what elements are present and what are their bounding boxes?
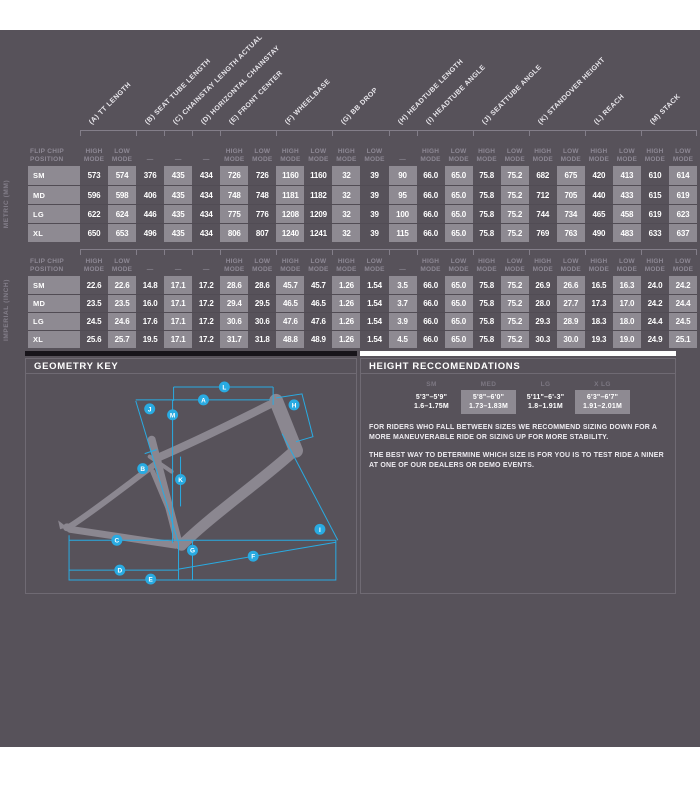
low-mode-header: LOW MODE bbox=[613, 249, 641, 276]
height-range-block: 6'3"–6'7"1.91–2.01M bbox=[575, 390, 630, 414]
marker-D: D bbox=[114, 565, 125, 576]
marker-G: G bbox=[187, 545, 198, 556]
table-cell: 435 bbox=[164, 166, 192, 185]
height-reco-top-bar bbox=[360, 351, 676, 356]
metric-unit-label: METRIC (MM) bbox=[1, 175, 13, 233]
height-recommendations-panel: HEIGHT RECCOMENDATIONS SM5'3"–5'9"1.6–1.… bbox=[360, 358, 676, 594]
table-cell: 66.0 bbox=[417, 223, 445, 242]
table-cell: 769 bbox=[529, 223, 557, 242]
table-cell: 75.8 bbox=[473, 276, 501, 294]
table-cell: 744 bbox=[529, 204, 557, 223]
table-cell: 95 bbox=[389, 185, 417, 204]
table-cell: 32 bbox=[332, 204, 360, 223]
table-cell: 66.0 bbox=[417, 294, 445, 312]
high-mode-header: HIGH MODE bbox=[473, 130, 501, 166]
table-cell: 30.0 bbox=[557, 330, 585, 348]
table-cell: 75.8 bbox=[473, 223, 501, 242]
table-cell: 763 bbox=[557, 223, 585, 242]
table-cell: 434 bbox=[192, 223, 220, 242]
table-cell: 32 bbox=[332, 185, 360, 204]
table-cell: 496 bbox=[136, 223, 164, 242]
table-cell: 434 bbox=[192, 185, 220, 204]
table-cell: 17.1 bbox=[164, 294, 192, 312]
low-mode-header: LOW MODE bbox=[501, 249, 529, 276]
table-cell: 435 bbox=[164, 185, 192, 204]
table-cell: 26.9 bbox=[529, 276, 557, 294]
height-range-meters: 1.6–1.75M bbox=[404, 402, 459, 411]
single-mode-header: — bbox=[164, 130, 192, 166]
height-column-label: LG bbox=[518, 379, 573, 390]
marker-E: E bbox=[145, 574, 156, 585]
single-mode-header: — bbox=[389, 130, 417, 166]
table-cell: 65.0 bbox=[445, 166, 473, 185]
height-range-meters: 1.91–2.01M bbox=[575, 402, 630, 411]
table-cell: 75.2 bbox=[501, 312, 529, 330]
table-cell: 75.2 bbox=[501, 276, 529, 294]
table-cell: 19.5 bbox=[136, 330, 164, 348]
bike-geometry-diagram: A B C D E F G H I J K L M bbox=[26, 374, 356, 593]
height-range-feet: 5'3"–5'9" bbox=[404, 393, 459, 402]
table-cell: 17.1 bbox=[164, 330, 192, 348]
table-cell: 624 bbox=[108, 204, 136, 223]
table-cell: 24.6 bbox=[108, 312, 136, 330]
svg-text:I: I bbox=[319, 527, 321, 534]
table-cell: 31.7 bbox=[220, 330, 248, 348]
height-range-block: 5'3"–5'9"1.6–1.75M bbox=[404, 390, 459, 414]
height-column-sm: SM5'3"–5'9"1.6–1.75M bbox=[404, 379, 459, 414]
measurement-lines bbox=[69, 387, 338, 580]
table-cell: 24.5 bbox=[669, 312, 697, 330]
table-cell: 420 bbox=[585, 166, 613, 185]
table-cell: 622 bbox=[80, 204, 108, 223]
high-mode-header: HIGH MODE bbox=[417, 130, 445, 166]
table-cell: 17.0 bbox=[613, 294, 641, 312]
table-cell: 28.6 bbox=[220, 276, 248, 294]
column-header-label: (F) WHEELBASE bbox=[284, 78, 332, 126]
low-mode-header: LOW MODE bbox=[557, 130, 585, 166]
table-cell: 726 bbox=[220, 166, 248, 185]
size-label: LG bbox=[28, 312, 80, 330]
table-cell: 17.2 bbox=[192, 312, 220, 330]
table-cell: 31.8 bbox=[248, 330, 276, 348]
marker-B: B bbox=[137, 463, 148, 474]
table-cell: 23.5 bbox=[108, 294, 136, 312]
table-cell: 440 bbox=[585, 185, 613, 204]
table-cell: 1181 bbox=[276, 185, 304, 204]
table-cell: 1.54 bbox=[360, 312, 388, 330]
table-cell: 75.8 bbox=[473, 185, 501, 204]
column-header-label: (E) FRONT CENTER bbox=[228, 70, 284, 126]
table-cell: 28.0 bbox=[529, 294, 557, 312]
size-label: XL bbox=[28, 223, 80, 242]
table-cell: 66.0 bbox=[417, 330, 445, 348]
table-cell: 24.9 bbox=[641, 330, 669, 348]
svg-text:F: F bbox=[251, 554, 255, 561]
table-cell: 75.8 bbox=[473, 330, 501, 348]
table-cell: 19.0 bbox=[613, 330, 641, 348]
table-cell: 434 bbox=[192, 166, 220, 185]
height-column-label: X LG bbox=[575, 379, 630, 390]
low-mode-header: LOW MODE bbox=[445, 249, 473, 276]
marker-A: A bbox=[198, 394, 209, 405]
metric-geometry-table: FLIP CHIP POSITIONHIGH MODELOW MODE———HI… bbox=[28, 130, 697, 242]
table-cell: 615 bbox=[641, 185, 669, 204]
table-cell: 1.54 bbox=[360, 294, 388, 312]
table-cell: 32 bbox=[332, 166, 360, 185]
table-cell: 45.7 bbox=[276, 276, 304, 294]
table-cell: 598 bbox=[108, 185, 136, 204]
table-cell: 1241 bbox=[304, 223, 332, 242]
table-cell: 48.8 bbox=[276, 330, 304, 348]
table-cell: 66.0 bbox=[417, 204, 445, 223]
height-column-x-lg: X LG6'3"–6'7"1.91–2.01M bbox=[575, 379, 630, 414]
high-mode-header: HIGH MODE bbox=[220, 130, 248, 166]
svg-text:M: M bbox=[170, 412, 175, 419]
high-mode-header: HIGH MODE bbox=[80, 249, 108, 276]
low-mode-header: LOW MODE bbox=[304, 249, 332, 276]
low-mode-header: LOW MODE bbox=[669, 249, 697, 276]
table-cell: 25.6 bbox=[80, 330, 108, 348]
table-cell: 45.7 bbox=[304, 276, 332, 294]
table-cell: 573 bbox=[80, 166, 108, 185]
table-cell: 1160 bbox=[304, 166, 332, 185]
high-mode-header: HIGH MODE bbox=[332, 130, 360, 166]
svg-text:K: K bbox=[178, 477, 183, 484]
height-recommendations-title: HEIGHT RECCOMENDATIONS bbox=[361, 359, 675, 374]
high-mode-header: HIGH MODE bbox=[276, 249, 304, 276]
table-cell: 75.2 bbox=[501, 294, 529, 312]
table-cell: 47.6 bbox=[276, 312, 304, 330]
table-cell: 75.2 bbox=[501, 166, 529, 185]
low-mode-header: LOW MODE bbox=[360, 130, 388, 166]
table-cell: 39 bbox=[360, 223, 388, 242]
high-mode-header: HIGH MODE bbox=[529, 130, 557, 166]
marker-L: L bbox=[219, 381, 230, 392]
table-cell: 17.1 bbox=[164, 276, 192, 294]
table-cell: 16.3 bbox=[613, 276, 641, 294]
table-cell: 1240 bbox=[276, 223, 304, 242]
table-cell: 75.2 bbox=[501, 185, 529, 204]
table-cell: 100 bbox=[389, 204, 417, 223]
table-cell: 807 bbox=[248, 223, 276, 242]
table-cell: 90 bbox=[389, 166, 417, 185]
high-mode-header: HIGH MODE bbox=[585, 249, 613, 276]
bike-frame bbox=[70, 401, 296, 545]
down-tube bbox=[182, 454, 292, 546]
table-cell: 483 bbox=[613, 223, 641, 242]
table-cell: 47.6 bbox=[304, 312, 332, 330]
column-header-label: (K) STANDOVER HEIGHT bbox=[537, 56, 607, 126]
table-cell: 27.7 bbox=[557, 294, 585, 312]
table-cell: 30.6 bbox=[220, 312, 248, 330]
high-mode-header: HIGH MODE bbox=[473, 249, 501, 276]
marker-I: I bbox=[314, 524, 325, 535]
svg-text:L: L bbox=[222, 384, 226, 391]
table-cell: 65.0 bbox=[445, 294, 473, 312]
table-cell: 1.26 bbox=[332, 294, 360, 312]
table-cell: 23.5 bbox=[80, 294, 108, 312]
column-header-label: (L) REACH bbox=[593, 93, 626, 126]
geometry-key-panel: GEOMETRY KEY bbox=[25, 358, 357, 594]
high-mode-header: HIGH MODE bbox=[332, 249, 360, 276]
low-mode-header: LOW MODE bbox=[501, 130, 529, 166]
low-mode-header: LOW MODE bbox=[360, 249, 388, 276]
table-cell: 24.4 bbox=[669, 294, 697, 312]
low-mode-header: LOW MODE bbox=[304, 130, 332, 166]
height-range-block: 5'8"–6'0"1.73–1.83M bbox=[461, 390, 516, 414]
low-mode-header: LOW MODE bbox=[248, 249, 276, 276]
svg-text:B: B bbox=[140, 466, 145, 473]
size-label: SM bbox=[28, 166, 80, 185]
bottom-bracket bbox=[174, 537, 186, 549]
table-cell: 14.8 bbox=[136, 276, 164, 294]
height-range-feet: 5'11"–6'-3" bbox=[518, 393, 573, 402]
table-cell: 637 bbox=[669, 223, 697, 242]
table-cell: 650 bbox=[80, 223, 108, 242]
table-cell: 610 bbox=[641, 166, 669, 185]
table-cell: 574 bbox=[108, 166, 136, 185]
table-cell: 39 bbox=[360, 204, 388, 223]
table-cell: 619 bbox=[641, 204, 669, 223]
table-cell: 22.6 bbox=[80, 276, 108, 294]
table-cell: 705 bbox=[557, 185, 585, 204]
height-range-block: 5'11"–6'-3"1.8–1.91M bbox=[518, 390, 573, 414]
high-mode-header: HIGH MODE bbox=[80, 130, 108, 166]
table-cell: 24.0 bbox=[641, 276, 669, 294]
table-cell: 16.0 bbox=[136, 294, 164, 312]
column-header-label: (I) HEADTUBE ANGLE bbox=[425, 64, 487, 126]
table-cell: 16.5 bbox=[585, 276, 613, 294]
table-cell: 65.0 bbox=[445, 185, 473, 204]
table-cell: 596 bbox=[80, 185, 108, 204]
low-mode-header: LOW MODE bbox=[108, 249, 136, 276]
table-cell: 29.5 bbox=[248, 294, 276, 312]
table-cell: 65.0 bbox=[445, 204, 473, 223]
table-cell: 24.4 bbox=[641, 312, 669, 330]
table-cell: 17.3 bbox=[585, 294, 613, 312]
table-cell: 1.26 bbox=[332, 276, 360, 294]
table-cell: 75.8 bbox=[473, 204, 501, 223]
table-cell: 25.7 bbox=[108, 330, 136, 348]
table-cell: 25.1 bbox=[669, 330, 697, 348]
table-cell: 776 bbox=[248, 204, 276, 223]
base-box-lines bbox=[69, 535, 336, 580]
height-column-label: MED bbox=[461, 379, 516, 390]
head-angle-line bbox=[282, 434, 338, 541]
table-cell: 19.3 bbox=[585, 330, 613, 348]
size-label: LG bbox=[28, 204, 80, 223]
table-cell: 446 bbox=[136, 204, 164, 223]
marker-K: K bbox=[175, 474, 186, 485]
table-cell: 633 bbox=[641, 223, 669, 242]
table-cell: 65.0 bbox=[445, 330, 473, 348]
table-cell: 1.26 bbox=[332, 330, 360, 348]
table-cell: 29.3 bbox=[529, 312, 557, 330]
table-cell: 1.54 bbox=[360, 276, 388, 294]
column-header-label: (A) TT LENGTH bbox=[88, 81, 133, 126]
table-cell: 806 bbox=[220, 223, 248, 242]
single-mode-header: — bbox=[136, 130, 164, 166]
table-cell: 29.4 bbox=[220, 294, 248, 312]
table-cell: 1160 bbox=[276, 166, 304, 185]
table-cell: 435 bbox=[164, 223, 192, 242]
svg-text:C: C bbox=[115, 538, 120, 545]
table-cell: 1.26 bbox=[332, 312, 360, 330]
size-label: MD bbox=[28, 294, 80, 312]
geometry-key-top-bar bbox=[25, 351, 357, 356]
geometry-chart-page: (A) TT LENGTH(B) SEAT TUBE LENGTH(C) CHA… bbox=[0, 0, 700, 800]
table-cell: 24.2 bbox=[669, 276, 697, 294]
flip-chip-position-header: FLIP CHIP POSITION bbox=[28, 249, 80, 276]
table-cell: 18.3 bbox=[585, 312, 613, 330]
table-cell: 48.9 bbox=[304, 330, 332, 348]
table-cell: 28.9 bbox=[557, 312, 585, 330]
svg-text:E: E bbox=[149, 577, 154, 584]
table-cell: 17.6 bbox=[136, 312, 164, 330]
table-cell: 65.0 bbox=[445, 312, 473, 330]
single-mode-header: — bbox=[192, 249, 220, 276]
table-cell: 376 bbox=[136, 166, 164, 185]
low-mode-header: LOW MODE bbox=[248, 130, 276, 166]
height-column-med: MED5'8"–6'0"1.73–1.83M bbox=[461, 379, 516, 414]
table-cell: 66.0 bbox=[417, 312, 445, 330]
table-cell: 748 bbox=[248, 185, 276, 204]
marker-H: H bbox=[289, 399, 300, 410]
marker-badges: A B C D E F G H I J K L M bbox=[111, 381, 325, 584]
high-mode-header: HIGH MODE bbox=[641, 130, 669, 166]
table-cell: 623 bbox=[669, 204, 697, 223]
table-cell: 17.2 bbox=[192, 330, 220, 348]
high-mode-header: HIGH MODE bbox=[220, 249, 248, 276]
table-cell: 17.2 bbox=[192, 294, 220, 312]
table-cell: 1182 bbox=[304, 185, 332, 204]
imperial-unit-label: IMPERIAL (INCH) bbox=[1, 283, 13, 341]
table-cell: 406 bbox=[136, 185, 164, 204]
table-cell: 1208 bbox=[276, 204, 304, 223]
table-cell: 3.7 bbox=[389, 294, 417, 312]
table-cell: 39 bbox=[360, 166, 388, 185]
table-cell: 435 bbox=[164, 204, 192, 223]
table-cell: 748 bbox=[220, 185, 248, 204]
high-mode-header: HIGH MODE bbox=[529, 249, 557, 276]
table-cell: 1.54 bbox=[360, 330, 388, 348]
table-cell: 490 bbox=[585, 223, 613, 242]
high-mode-header: HIGH MODE bbox=[641, 249, 669, 276]
height-column-label: SM bbox=[404, 379, 459, 390]
table-cell: 66.0 bbox=[417, 166, 445, 185]
low-mode-header: LOW MODE bbox=[557, 249, 585, 276]
table-cell: 726 bbox=[248, 166, 276, 185]
single-mode-header: — bbox=[136, 249, 164, 276]
table-cell: 4.5 bbox=[389, 330, 417, 348]
table-cell: 66.0 bbox=[417, 185, 445, 204]
table-cell: 75.2 bbox=[501, 223, 529, 242]
column-header-label: (G) BB DROP bbox=[340, 87, 379, 126]
table-cell: 30.3 bbox=[529, 330, 557, 348]
table-cell: 46.5 bbox=[276, 294, 304, 312]
table-cell: 65.0 bbox=[445, 276, 473, 294]
sizing-advice-paragraph: FOR RIDERS WHO FALL BETWEEN SIZES WE REC… bbox=[369, 423, 665, 442]
table-cell: 413 bbox=[613, 166, 641, 185]
high-mode-header: HIGH MODE bbox=[585, 130, 613, 166]
table-cell: 775 bbox=[220, 204, 248, 223]
single-mode-header: — bbox=[164, 249, 192, 276]
marker-J: J bbox=[144, 403, 155, 414]
table-cell: 32 bbox=[332, 223, 360, 242]
geometry-key-title: GEOMETRY KEY bbox=[26, 359, 356, 374]
table-cell: 619 bbox=[669, 185, 697, 204]
flip-chip-position-header: FLIP CHIP POSITION bbox=[28, 130, 80, 166]
table-cell: 433 bbox=[613, 185, 641, 204]
table-cell: 675 bbox=[557, 166, 585, 185]
table-cell: 65.0 bbox=[445, 223, 473, 242]
column-header-label: (M) STACK bbox=[649, 93, 682, 126]
table-cell: 30.6 bbox=[248, 312, 276, 330]
height-range-feet: 5'8"–6'0" bbox=[461, 393, 516, 402]
table-cell: 24.2 bbox=[641, 294, 669, 312]
imperial-geometry-table: FLIP CHIP POSITIONHIGH MODELOW MODE———HI… bbox=[28, 249, 697, 348]
marker-C: C bbox=[111, 535, 122, 546]
size-label: SM bbox=[28, 276, 80, 294]
table-cell: 712 bbox=[529, 185, 557, 204]
svg-text:H: H bbox=[292, 402, 297, 409]
marker-F: F bbox=[248, 551, 259, 562]
table-cell: 28.6 bbox=[248, 276, 276, 294]
table-cell: 17.2 bbox=[192, 276, 220, 294]
table-cell: 26.6 bbox=[557, 276, 585, 294]
svg-text:G: G bbox=[190, 548, 195, 555]
low-mode-header: LOW MODE bbox=[108, 130, 136, 166]
height-range-meters: 1.8–1.91M bbox=[518, 402, 573, 411]
table-cell: 75.2 bbox=[501, 204, 529, 223]
single-mode-header: — bbox=[192, 130, 220, 166]
table-cell: 434 bbox=[192, 204, 220, 223]
column-header-label: (J) SEATTUBE ANGLE bbox=[481, 64, 543, 126]
table-cell: 18.0 bbox=[613, 312, 641, 330]
table-cell: 1209 bbox=[304, 204, 332, 223]
low-mode-header: LOW MODE bbox=[613, 130, 641, 166]
low-mode-header: LOW MODE bbox=[445, 130, 473, 166]
svg-text:J: J bbox=[148, 406, 152, 413]
table-cell: 66.0 bbox=[417, 276, 445, 294]
table-cell: 3.5 bbox=[389, 276, 417, 294]
table-cell: 39 bbox=[360, 185, 388, 204]
table-cell: 458 bbox=[613, 204, 641, 223]
svg-text:A: A bbox=[201, 397, 206, 404]
high-mode-header: HIGH MODE bbox=[276, 130, 304, 166]
table-cell: 653 bbox=[108, 223, 136, 242]
height-columns: SM5'3"–5'9"1.6–1.75MMED5'8"–6'0"1.73–1.8… bbox=[404, 379, 675, 414]
table-cell: 115 bbox=[389, 223, 417, 242]
high-mode-header: HIGH MODE bbox=[417, 249, 445, 276]
table-cell: 465 bbox=[585, 204, 613, 223]
table-cell: 46.5 bbox=[304, 294, 332, 312]
table-cell: 75.8 bbox=[473, 294, 501, 312]
marker-M: M bbox=[167, 409, 178, 420]
size-label: XL bbox=[28, 330, 80, 348]
chart-canvas: (A) TT LENGTH(B) SEAT TUBE LENGTH(C) CHA… bbox=[0, 30, 700, 747]
size-label: MD bbox=[28, 185, 80, 204]
test-ride-paragraph: THE BEST WAY TO DETERMINE WHICH SIZE IS … bbox=[369, 451, 665, 470]
table-cell: 17.1 bbox=[164, 312, 192, 330]
single-mode-header: — bbox=[389, 249, 417, 276]
table-cell: 734 bbox=[557, 204, 585, 223]
height-range-meters: 1.73–1.83M bbox=[461, 402, 516, 411]
table-cell: 3.9 bbox=[389, 312, 417, 330]
table-cell: 75.8 bbox=[473, 312, 501, 330]
table-cell: 24.5 bbox=[80, 312, 108, 330]
svg-text:D: D bbox=[117, 568, 122, 575]
